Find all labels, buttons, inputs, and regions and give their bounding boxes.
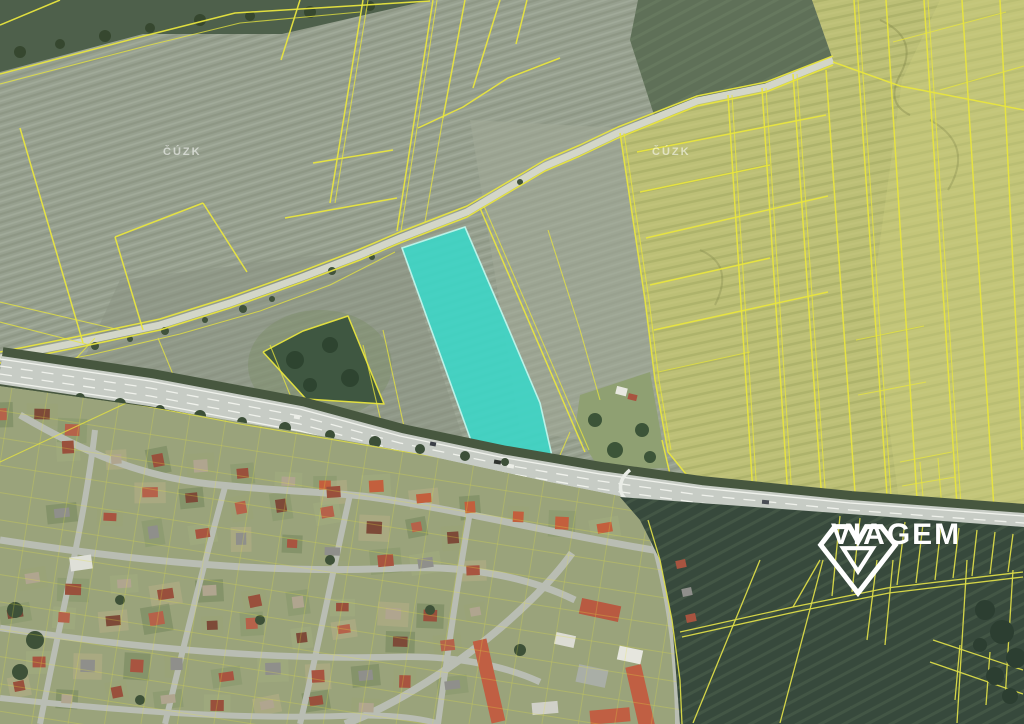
dark-field-southeast [620, 497, 1024, 724]
map-viewport[interactable]: ČÚZK ČÚZK VIAGEM [0, 0, 1024, 724]
aerial-map-image [0, 0, 1024, 724]
